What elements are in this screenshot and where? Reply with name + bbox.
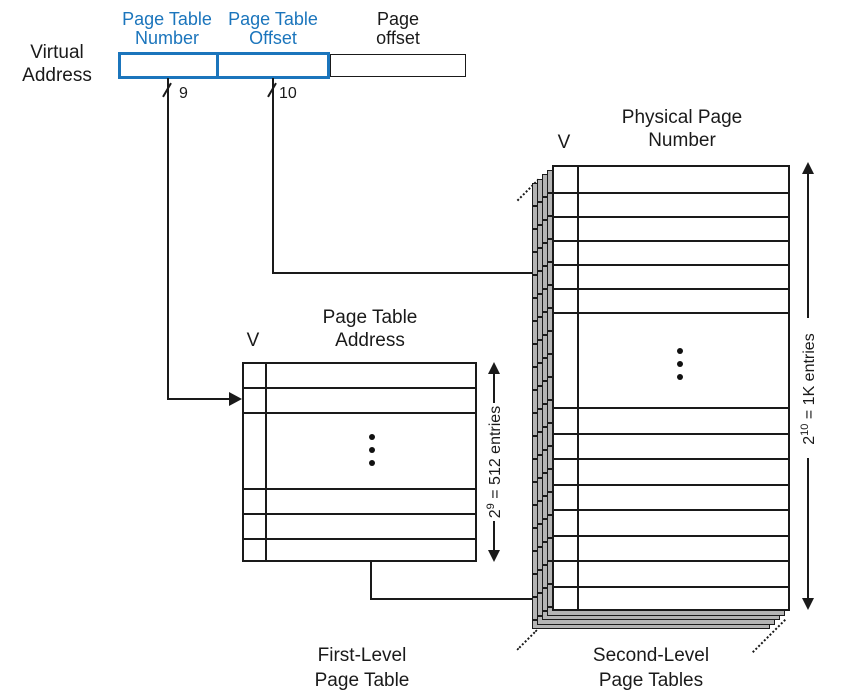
bit-width-9: 9 [179,85,188,103]
second-level-stack [532,165,794,635]
row-line [244,488,475,490]
first-level-caption: First-Level Page Table [315,643,410,693]
row-line [554,433,788,435]
entries-arrow-line [493,373,495,403]
bit-width-10: 10 [279,85,297,103]
row-line [244,513,475,515]
row-line [554,560,788,562]
va-fields-blue-box [118,52,330,79]
field-label-page-table-number: Page Table Number [122,10,212,48]
first-level-page-table [242,362,477,562]
ellipsis-dots [676,348,684,387]
row-line [554,288,788,290]
row-line [244,412,475,414]
entries-arrow-line [807,458,809,598]
row-line [244,538,475,540]
v-column-divider [265,364,267,560]
ptn-line-vertical [167,78,169,400]
pto-line-horizontal [272,272,535,274]
ellipsis-dots [368,434,376,473]
second-level-page-table-front [552,165,790,611]
row-line [554,458,788,460]
field-label-page-table-offset: Page Table Offset [228,10,318,48]
row-line [554,216,788,218]
virtual-address-label: Virtual Address [57,41,127,87]
entries-arrow-line [493,521,495,551]
pto-line-vertical [272,78,274,274]
entries-arrow-down [802,598,814,610]
row-line [554,484,788,486]
second-level-v-header: V [558,131,571,154]
va-field-divider [216,55,219,76]
first-level-v-header: V [247,329,260,352]
flt-out-line-vertical [370,561,372,600]
entries-arrow-down [488,550,500,562]
ptn-line-horizontal [167,398,230,400]
row-line [554,509,788,511]
second-level-entries-annotation: 210 = 1K entries [799,333,819,444]
entries-arrow-line [807,173,809,318]
v-column-divider [577,167,579,609]
row-line [554,407,788,409]
second-level-header: Physical Page Number [622,106,742,152]
two-level-page-table-diagram: Virtual Address Page Table Number Page T… [0,0,844,698]
first-level-header: Page Table Address [323,306,418,352]
va-page-offset-box [330,54,466,77]
first-level-entries-annotation: 29 = 512 entries [485,406,505,518]
field-label-page-offset: Page offset [376,10,420,48]
row-line [554,312,788,314]
flt-out-line-horizontal [370,598,535,600]
row-line [554,535,788,537]
row-line [554,192,788,194]
row-line [244,387,475,389]
ptn-arrowhead [229,392,242,406]
row-line [554,240,788,242]
virtual-address-label-line1: Virtual [22,41,92,64]
row-line [554,586,788,588]
second-level-caption: Second-Level Page Tables [593,643,709,693]
virtual-address-label-line2: Address [22,64,92,87]
row-line [554,264,788,266]
